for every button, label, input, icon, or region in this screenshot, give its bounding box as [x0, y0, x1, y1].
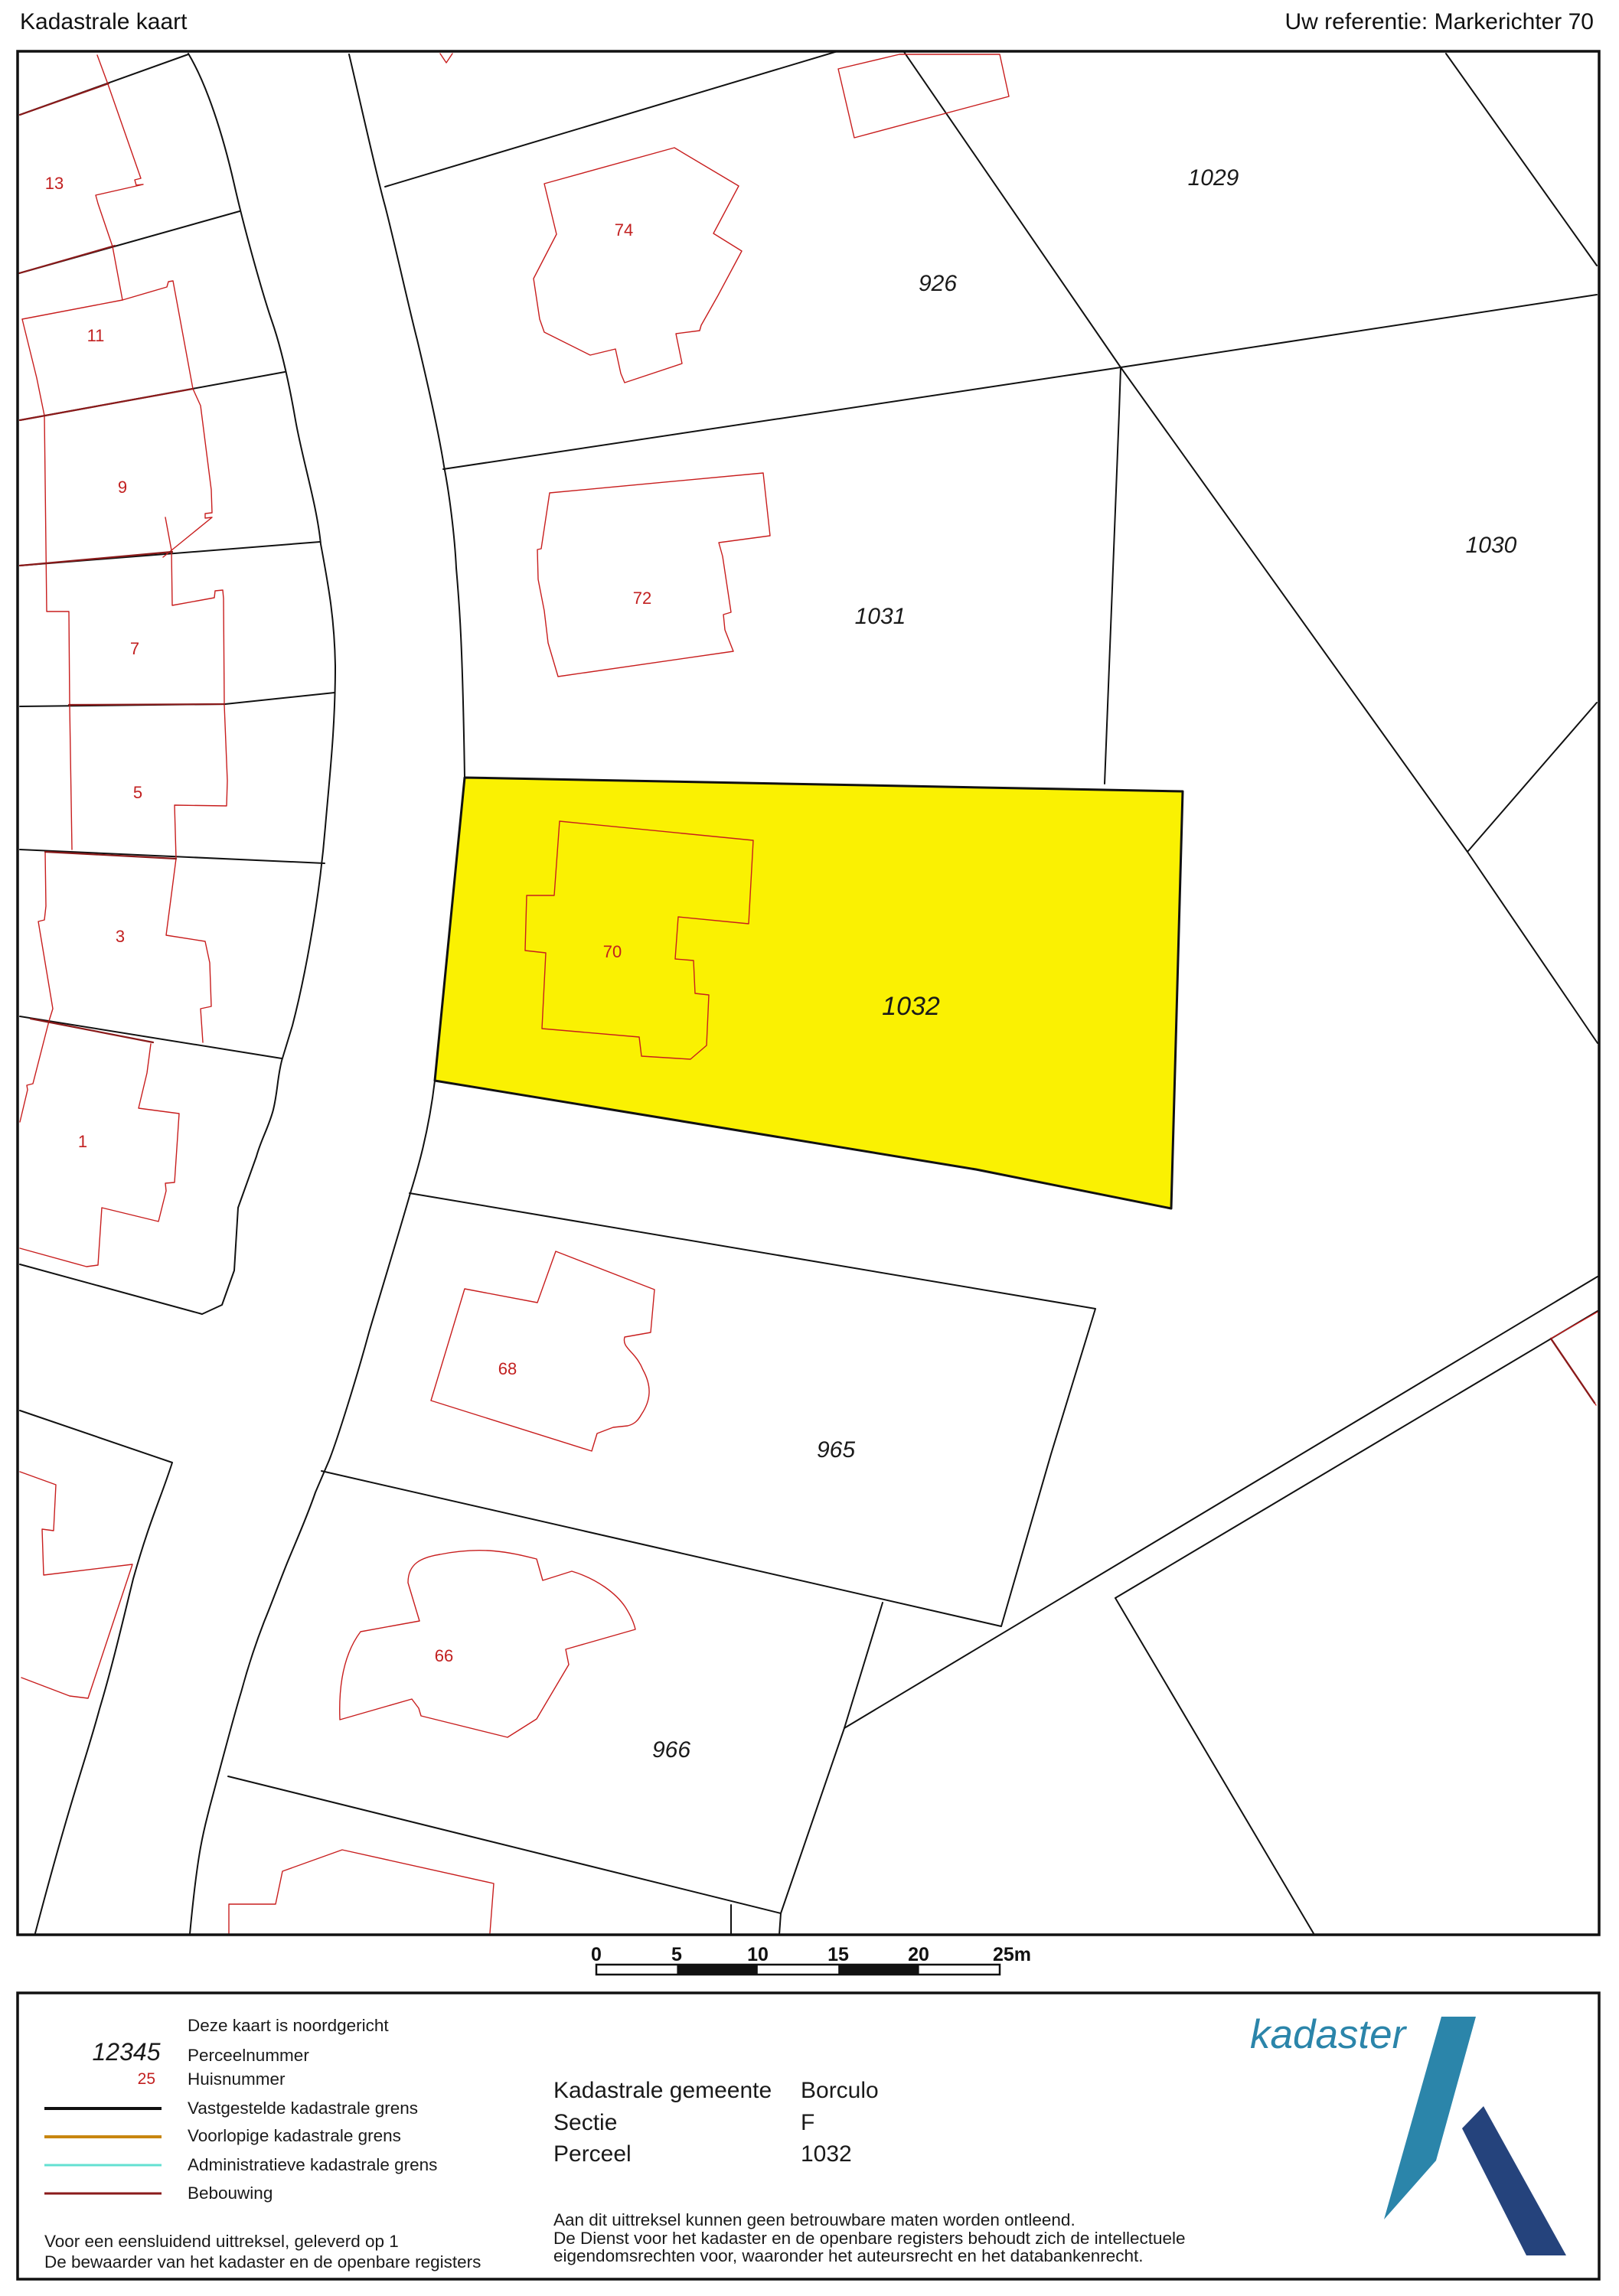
svg-text:7: 7: [130, 639, 139, 658]
svg-text:926: 926: [919, 271, 957, 296]
svg-text:Perceelnummer: Perceelnummer: [188, 2046, 309, 2065]
svg-text:Deze kaart is noordgericht: Deze kaart is noordgericht: [188, 2016, 389, 2035]
svg-text:1030: 1030: [1466, 533, 1517, 558]
svg-text:11: 11: [87, 326, 105, 345]
svg-text:66: 66: [435, 1646, 453, 1665]
svg-text:Administratieve kadastrale gre: Administratieve kadastrale grens: [188, 2155, 437, 2174]
svg-text:Borculo: Borculo: [801, 2078, 879, 2103]
svg-text:Vastgestelde kadastrale grens: Vastgestelde kadastrale grens: [188, 2099, 418, 2118]
svg-text:Voorlopige kadastrale grens: Voorlopige kadastrale grens: [188, 2126, 401, 2145]
svg-text:70: 70: [603, 942, 622, 961]
svg-text:Kadastrale gemeente: Kadastrale gemeente: [553, 2078, 772, 2103]
svg-text:5: 5: [671, 1944, 682, 1965]
svg-text:Sectie: Sectie: [553, 2110, 617, 2135]
svg-text:1032: 1032: [882, 992, 940, 1021]
svg-text:25: 25: [138, 2070, 155, 2088]
svg-text:1: 1: [78, 1132, 87, 1151]
svg-text:De bewaarder van het kadaster: De bewaarder van het kadaster en de open…: [44, 2252, 481, 2272]
svg-text:15: 15: [827, 1944, 849, 1965]
svg-text:20: 20: [908, 1944, 929, 1965]
svg-text:Uw referentie: Markerichter 70: Uw referentie: Markerichter 70: [1285, 9, 1594, 34]
svg-text:Bebouwing: Bebouwing: [188, 2183, 273, 2203]
svg-text:Voor een eensluidend uittrekse: Voor een eensluidend uittreksel, gelever…: [44, 2232, 399, 2251]
svg-text:12345: 12345: [93, 2038, 161, 2066]
svg-text:13: 13: [45, 174, 64, 193]
svg-text:68: 68: [498, 1359, 517, 1378]
svg-text:Perceel: Perceel: [553, 2141, 632, 2167]
svg-text:965: 965: [817, 1437, 855, 1463]
svg-text:F: F: [801, 2110, 814, 2135]
svg-text:kadaster: kadaster: [1250, 2012, 1408, 2057]
svg-text:Huisnummer: Huisnummer: [188, 2069, 286, 2089]
svg-text:Kadastrale kaart: Kadastrale kaart: [20, 9, 188, 34]
svg-text:1029: 1029: [1188, 165, 1239, 191]
svg-text:25m: 25m: [993, 1944, 1031, 1965]
svg-text:9: 9: [118, 478, 127, 497]
svg-text:74: 74: [615, 220, 633, 240]
svg-text:Aan dit uittreksel kunnen geen: Aan dit uittreksel kunnen geen betrouwba…: [553, 2210, 1076, 2229]
svg-text:72: 72: [633, 589, 651, 608]
svg-text:1032: 1032: [801, 2141, 852, 2167]
svg-text:5: 5: [133, 783, 142, 802]
svg-text:0: 0: [591, 1944, 602, 1965]
svg-text:eigendomsrechten voor, waarond: eigendomsrechten voor, waaronder het aut…: [553, 2246, 1144, 2265]
svg-text:10: 10: [747, 1944, 769, 1965]
svg-text:966: 966: [652, 1737, 690, 1763]
svg-text:3: 3: [116, 927, 125, 946]
svg-text:De Dienst voor het kadaster en: De Dienst voor het kadaster en de openba…: [553, 2229, 1186, 2248]
svg-text:1031: 1031: [855, 604, 906, 629]
